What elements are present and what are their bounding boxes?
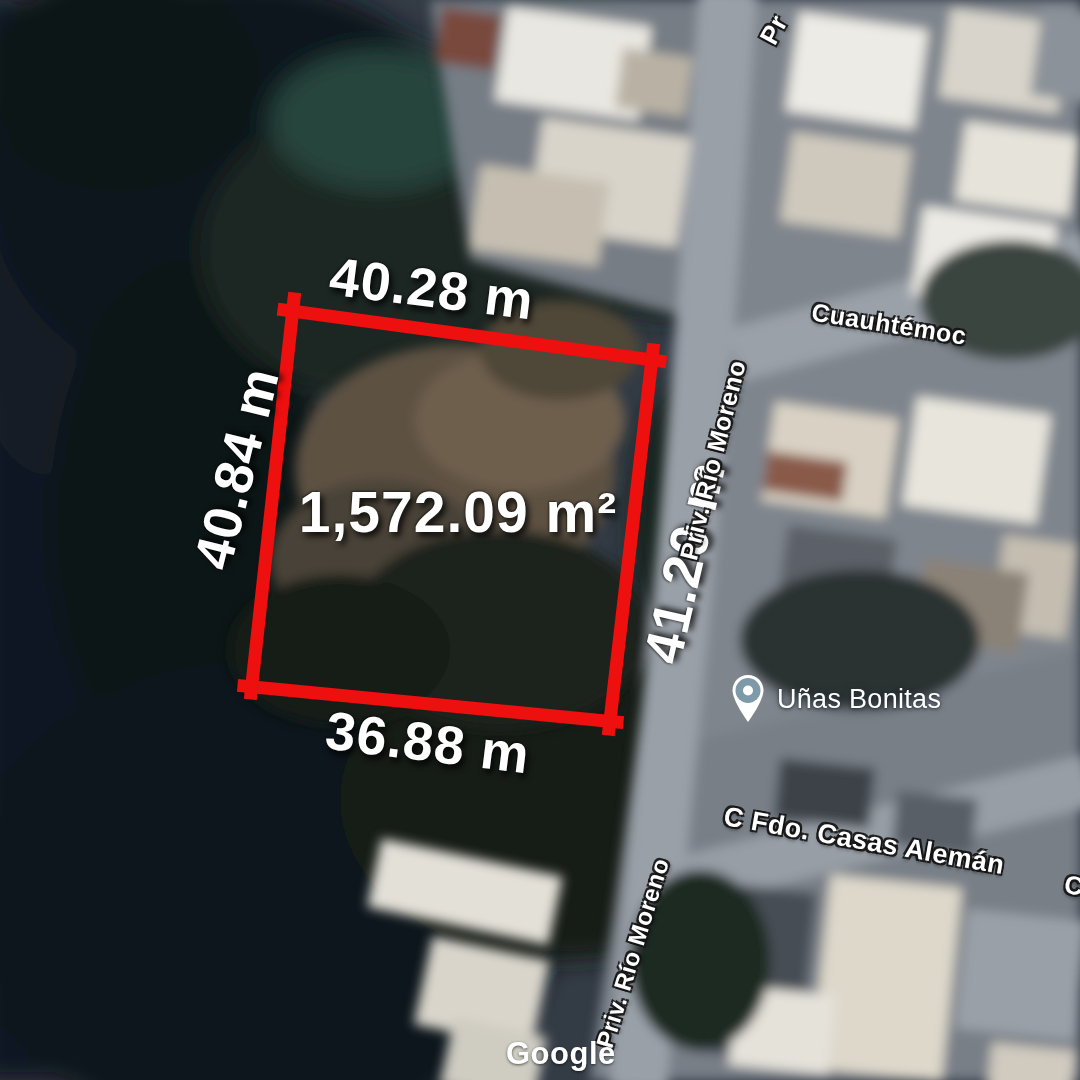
poi-unas-bonitas-label: Uñas Bonitas <box>777 684 941 715</box>
place-pin-icon <box>731 674 765 724</box>
street-label-partial-right: C <box>1062 869 1080 902</box>
google-watermark[interactable]: Google <box>506 1036 616 1072</box>
parcel-area-label: 1,572.09 m² <box>299 479 617 545</box>
poi-unas-bonitas[interactable]: Uñas Bonitas <box>731 674 941 724</box>
satellite-map-canvas[interactable]: 40.28 m 40.84 m 41.20 m 36.88 m 1,572.09… <box>0 0 1080 1080</box>
